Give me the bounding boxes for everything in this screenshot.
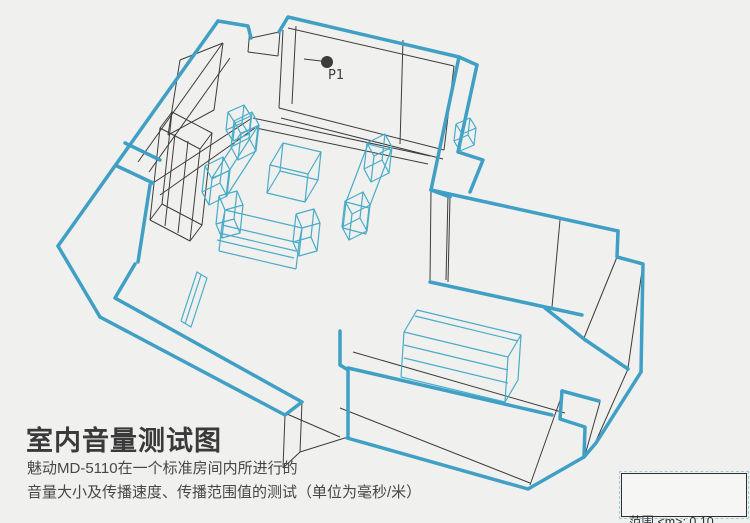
floorplan-viewport: P1 室内音量测试图 魅动MD-5110在一个标准房间内所进行的 音量大小及传播…: [0, 0, 750, 523]
page-title: 室内音量测试图: [26, 419, 222, 458]
wire-line: [584, 257, 617, 338]
wall-line: [279, 17, 477, 65]
furniture-line: [317, 223, 320, 251]
wall-line: [58, 21, 218, 246]
wire-line: [552, 220, 560, 307]
furniture-line: [212, 126, 258, 178]
wall-line: [100, 264, 302, 415]
wall-line: [125, 143, 160, 160]
description-line-2: 音量大小及传播速度、传播范围值的测试（单位为毫秒/米）: [27, 481, 421, 505]
wire-line: [251, 32, 279, 38]
furniture-line: [293, 237, 317, 256]
wire-line: [287, 414, 340, 437]
furniture-line: [474, 128, 476, 145]
furniture-line: [343, 228, 366, 234]
furniture-line: [454, 124, 456, 141]
furniture-line: [202, 166, 205, 192]
wire-line: [168, 60, 180, 135]
wall-line: [430, 282, 582, 315]
p1-marker-label: P1: [328, 68, 344, 83]
wire-line: [149, 58, 230, 172]
furniture-line: [219, 191, 243, 210]
furniture-line: [360, 192, 363, 218]
furniture-line: [311, 209, 314, 237]
furniture-line: [267, 171, 318, 202]
furniture-line: [181, 272, 207, 327]
wire-line: [400, 40, 403, 144]
furniture-line: [468, 118, 470, 135]
wire-line: [190, 149, 200, 241]
wall-line: [58, 246, 100, 317]
furniture-line: [364, 160, 389, 182]
furniture-line: [349, 214, 352, 240]
furniture-line: [219, 251, 296, 269]
wall-line: [545, 308, 628, 369]
wire-line: [178, 141, 188, 233]
info-range-row: 范围 <m>: 0.10: [629, 513, 739, 523]
wire-line: [596, 369, 628, 441]
furniture-line: [401, 332, 404, 377]
furniture-line: [296, 209, 320, 228]
wire-line: [150, 128, 160, 220]
wire-line: [150, 204, 202, 241]
wall-line: [218, 21, 251, 38]
wire-line: [278, 32, 280, 56]
p1-marker-dot: [321, 56, 333, 68]
furniture-line: [219, 233, 296, 251]
furniture-line: [209, 179, 212, 205]
wall-line: [562, 391, 599, 401]
furniture-line: [382, 134, 385, 160]
wire-line: [248, 52, 278, 56]
wire-line: [446, 195, 448, 280]
wire-line: [430, 190, 431, 282]
furniture-line: [404, 358, 508, 383]
furniture-line: [518, 335, 521, 380]
furniture-line: [293, 214, 296, 242]
info-panel: 范围 <m>: 0.10 时间 <ms> 0: [621, 473, 747, 517]
wall-line: [458, 65, 483, 192]
wall-line: [431, 190, 618, 231]
wire-line: [292, 26, 296, 104]
furniture-line: [217, 240, 294, 258]
description: 魅动MD-5110在一个标准房间内所进行的 音量大小及传播速度、传播范围值的测试…: [27, 457, 421, 505]
wall-line: [138, 185, 150, 262]
furniture-line: [404, 345, 508, 370]
wall-line: [560, 391, 585, 457]
wall-line: [340, 331, 348, 437]
wall-line: [117, 166, 153, 183]
description-line-1: 魅动MD-5110在一个标准房间内所进行的: [27, 457, 421, 481]
furniture-line: [242, 105, 244, 123]
furniture-line: [270, 143, 321, 174]
wire-line: [300, 402, 302, 452]
furniture-line: [415, 316, 518, 341]
furniture-line: [505, 357, 508, 402]
wall-line: [431, 57, 459, 190]
wire-line: [353, 352, 565, 413]
furniture-line: [234, 191, 237, 219]
furniture-line: [226, 112, 228, 130]
wire-line: [300, 437, 348, 452]
p1-marker-tail: [304, 59, 321, 61]
wall-line: [348, 368, 552, 415]
wire-line: [160, 112, 212, 149]
furniture-line: [371, 156, 374, 182]
wire-line: [448, 197, 450, 282]
